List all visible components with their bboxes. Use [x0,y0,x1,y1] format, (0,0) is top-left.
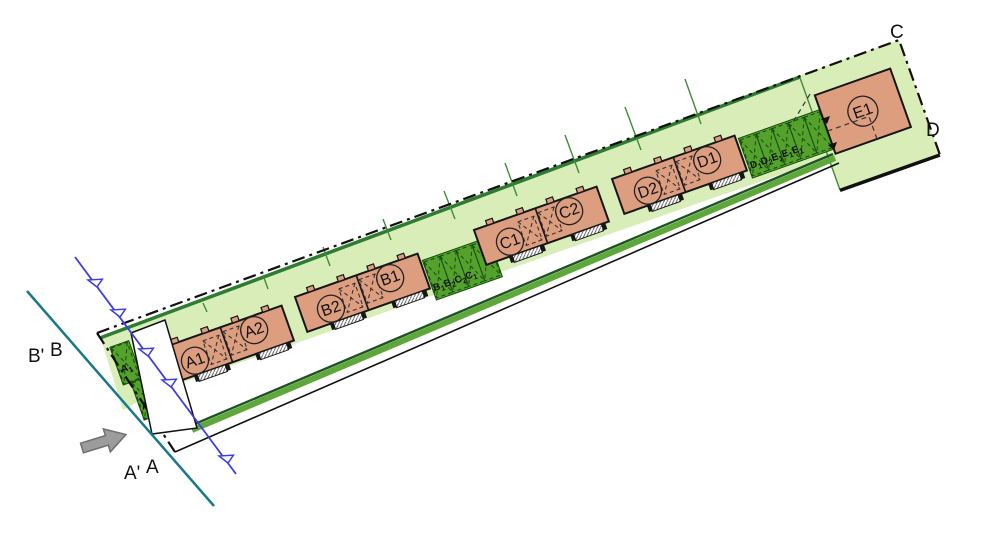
corner-label-c: C [890,22,904,43]
entrance-arrow-icon [78,423,129,459]
section-marker-icon [111,303,127,319]
section-marker-icon [88,273,104,289]
section-label-a: A [146,457,159,478]
section-marker-icon [219,449,235,465]
corner-label-d: D [926,120,940,141]
site-plan-page: A1 A2A1 B1B2C2C1 D1D2E1E1E1 A1 [0,0,985,533]
section-label-b-prime: B' [28,346,44,367]
site-plan-svg: A1 A2A1 B1B2C2C1 D1D2E1E1E1 A1 [0,0,985,533]
section-label-a-prime: A' [124,463,140,484]
section-label-b: B [50,340,63,361]
